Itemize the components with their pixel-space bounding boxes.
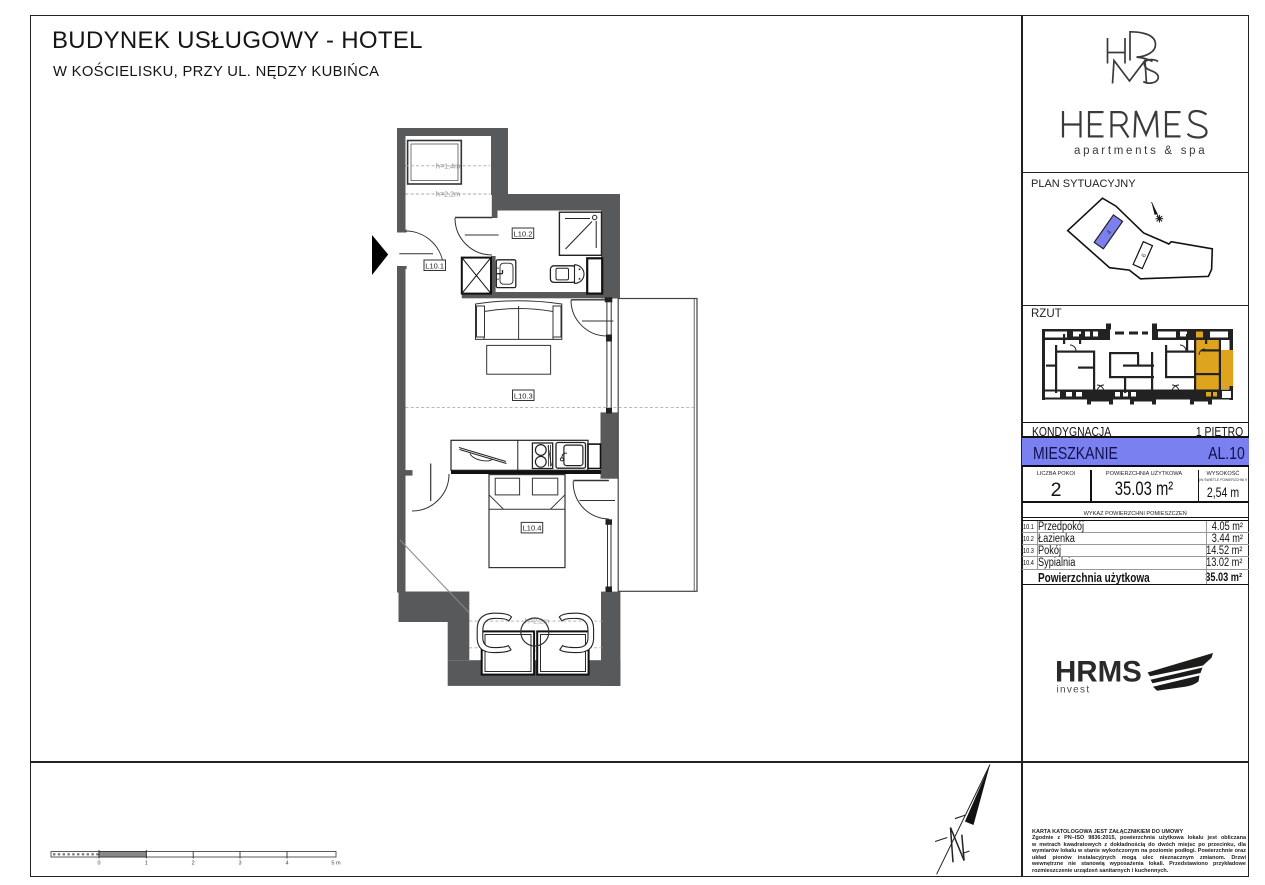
svg-text:2: 2 [192,861,195,867]
svg-text:4: 4 [285,861,288,867]
svg-text:h=1,4m: h=1,4m [436,161,460,170]
svg-text:L10.3: L10.3 [514,391,533,400]
svg-text:L10.1: L10.1 [425,261,444,270]
svg-text:5 m: 5 m [331,861,341,867]
svg-text:L10.2: L10.2 [514,229,533,238]
svg-text:0: 0 [97,861,100,867]
svg-text:L10.4: L10.4 [523,524,542,533]
svg-text:3: 3 [238,861,241,867]
svg-text:invest: invest [1057,685,1091,696]
svg-text:1: 1 [145,861,148,867]
svg-text:h=2,2m: h=2,2m [436,190,460,199]
svg-text:apartments & spa: apartments & spa [1074,145,1207,157]
